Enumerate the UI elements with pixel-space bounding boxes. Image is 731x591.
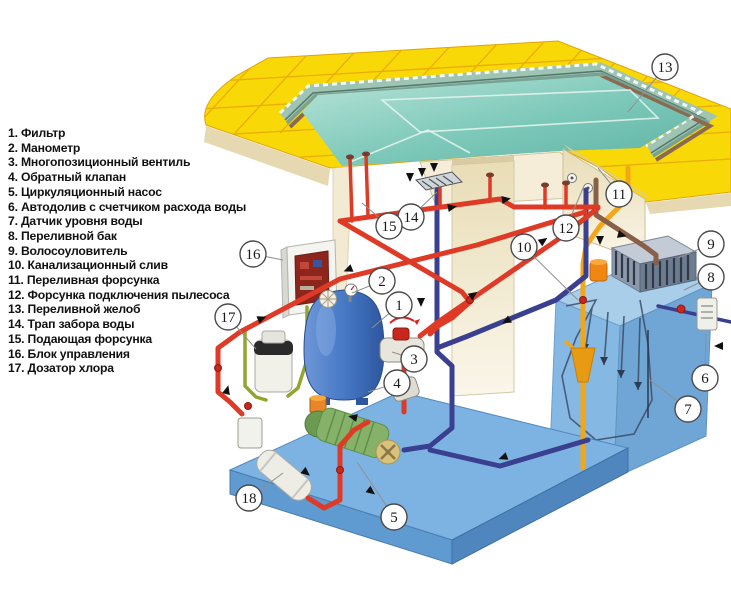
callout-number: 5 <box>390 510 398 526</box>
callout-number: 8 <box>707 270 715 286</box>
callout-number: 3 <box>410 352 418 368</box>
legend-item: 16. Блок управления <box>8 347 268 362</box>
callout-14: 14 <box>398 192 437 230</box>
callout-number: 1 <box>395 298 403 314</box>
callout-number: 2 <box>378 274 386 290</box>
callout-number: 11 <box>612 187 626 203</box>
legend: 1. Фильтр2. Манометр3. Многопозиционный … <box>8 126 268 376</box>
legend-item: 13. Переливной желоб <box>8 302 268 317</box>
float-switch <box>590 259 607 281</box>
flow-arrow <box>222 384 232 395</box>
legend-item: 15. Подающая форсунка <box>8 332 268 347</box>
legend-item: 4. Обратный клапан <box>8 170 268 185</box>
flow-arrow <box>417 298 425 307</box>
callout-number: 14 <box>404 210 420 226</box>
legend-item: 10. Канализационный слив <box>8 258 268 273</box>
pool-system-diagram: 123456789101112131415161718 1. Фильтр2. … <box>0 0 731 591</box>
autofill-meter <box>697 298 717 330</box>
legend-item: 17. Дозатор хлора <box>8 361 268 376</box>
legend-item: 3. Многопозиционный вентиль <box>8 155 268 170</box>
legend-item: 1. Фильтр <box>8 126 268 141</box>
callout-number: 6 <box>701 371 709 387</box>
legend-item: 2. Манометр <box>8 141 268 156</box>
legend-item: 12. Форсунка подключения пылесоса <box>8 288 268 303</box>
air-vent <box>320 291 337 308</box>
callout-number: 7 <box>684 402 692 418</box>
legend-item: 9. Волосоуловитель <box>8 244 268 259</box>
legend-item: 6. Автодолив с счетчиком расхода воды <box>8 200 268 215</box>
flow-arrow <box>714 342 723 350</box>
callout-number: 18 <box>242 491 257 507</box>
flow-arrow <box>406 173 414 182</box>
callout-number: 9 <box>707 237 715 253</box>
legend-item: 5. Циркуляционный насос <box>8 185 268 200</box>
legend-item: 7. Датчик уровня воды <box>8 214 268 229</box>
filter-tank <box>304 284 384 405</box>
legend-item: 14. Трап забора воды <box>8 317 268 332</box>
legend-item: 8. Переливной бак <box>8 229 268 244</box>
callout-number: 13 <box>658 60 673 76</box>
legend-item: 11. Переливная форсунка <box>8 273 268 288</box>
callout-number: 12 <box>559 221 574 237</box>
callout-number: 10 <box>517 240 532 256</box>
callout-15: 15 <box>362 203 402 239</box>
callout-number: 4 <box>393 376 401 392</box>
callout-number: 15 <box>382 219 397 235</box>
